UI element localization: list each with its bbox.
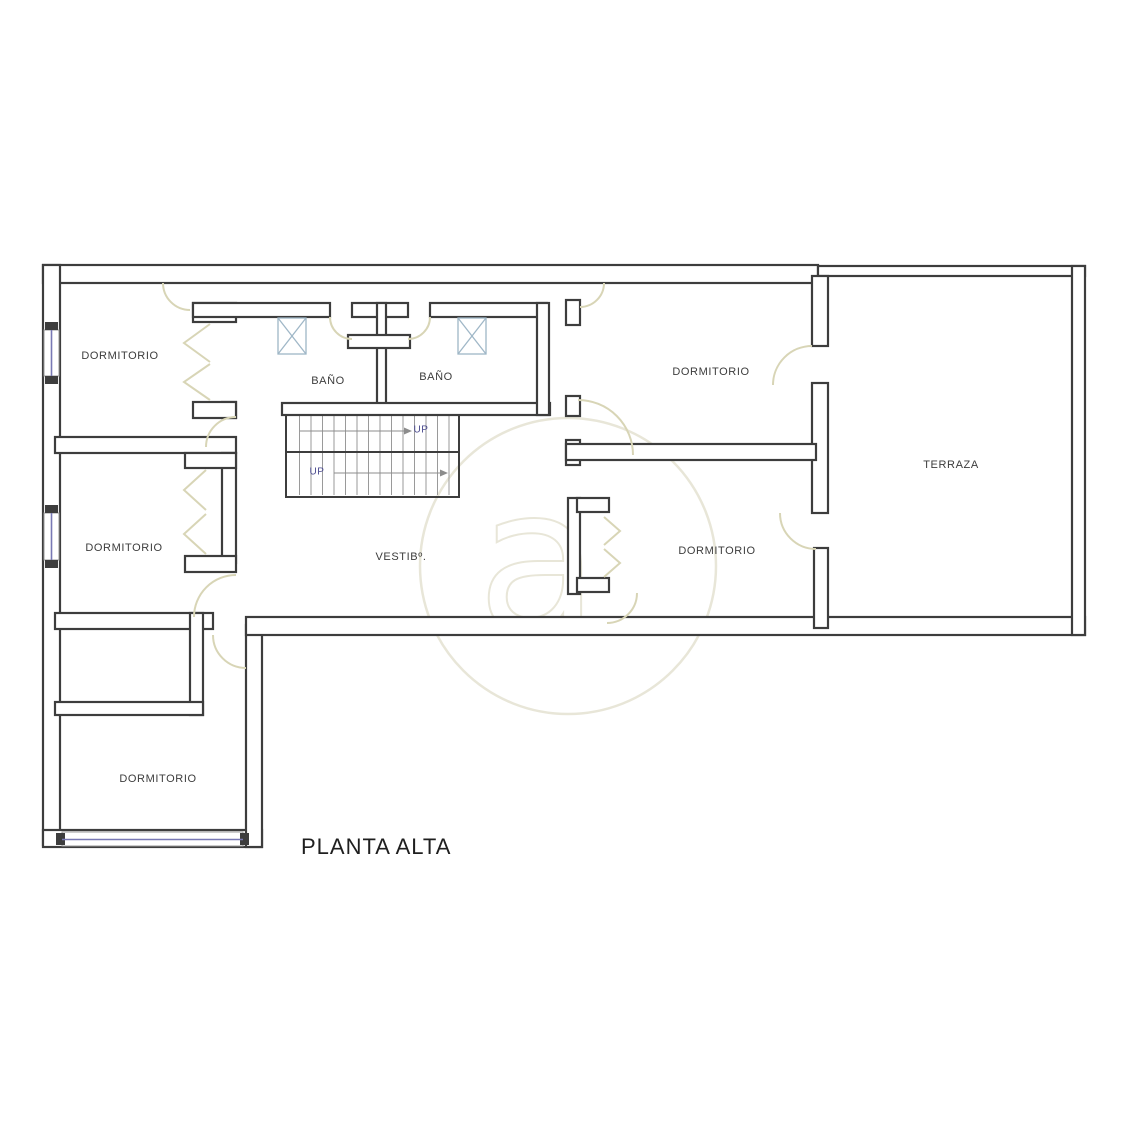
wall-wardrobe-cap-2 [193,402,236,418]
door-arc-bano-right [408,317,430,339]
wall-storage-bottom [55,702,203,715]
wall-divider-left-dorms [55,437,236,453]
wall-storage-right [190,613,203,715]
wardrobe-leaf-6 [604,549,620,577]
window-dorm-mid-left [44,505,59,568]
room-label-dormitorio-top-left: DORMITORIO [81,350,158,362]
wall-bano2-right [537,303,549,415]
room-label-bano-left: BAÑO [311,375,345,387]
room-label-dormitorio-bottom: DORMITORIO [119,773,196,785]
floor-plan-page: a [0,0,1129,1129]
window-dorm-bottom [56,832,249,846]
wall-vestibulo-left [222,453,236,563]
wall-divider-right-dorms [566,444,816,460]
wardrobe-leaf-4 [184,514,206,554]
wardrobe-leaf-3 [184,470,206,510]
wardrobe-leaf-1 [184,324,210,362]
wall-bottom-main [246,617,1085,635]
door-arc-terraza-upper [773,346,812,385]
wall-terraza-left-c [814,548,828,628]
wall-banos-top-a [193,303,330,317]
door-arc-vestibulo-wing [213,635,246,668]
shower-box-bano-right [458,318,486,354]
door-arc-dorm-top-right-entry [580,283,604,307]
wall-wardrobe-cap-3 [185,453,236,468]
room-label-dormitorio-top-right: DORMITORIO [672,366,749,378]
staircase [286,409,459,497]
wall-right-terraza [1072,266,1085,635]
wall-banos-jamb [348,335,410,348]
door-arc-dorm-mid-left [194,575,236,617]
room-label-dormitorio-mid-right: DORMITORIO [678,545,755,557]
plan-title: PLANTA ALTA [301,834,451,860]
door-arc-dorm-top-left [163,283,190,310]
room-label-bano-right: BAÑO [419,371,453,383]
wardrobe-leaf-2 [184,364,210,400]
stair-up-label-upper: UP [414,425,429,436]
wall-right-wing [246,625,262,847]
wall-banos-top-c [430,303,547,317]
wall-closet-cap-top [577,498,609,512]
wall-wardrobe-cap-4 [185,556,236,572]
shower-box-bano-left [278,318,306,354]
door-arc-terraza-lower [780,513,816,549]
floor-plan-drawing: a [0,0,1129,1129]
stair-up-label-lower: UP [310,467,325,478]
wall-closet-cap-bottom [577,578,609,592]
wall-banos-bottom [282,403,550,415]
wall-nook-top [566,300,580,325]
room-label-terraza: TERRAZA [923,459,979,471]
wall-nook-bottom [566,396,580,416]
window-dorm-top-left [44,322,59,384]
wall-banos-partition [377,303,386,413]
room-label-dormitorio-mid-left: DORMITORIO [85,542,162,554]
wall-terraza-left-a [812,276,828,346]
windows [44,322,249,846]
room-label-vestibulo: VESTIBº. [376,551,427,563]
wall-top-main [43,265,818,283]
wardrobe-leaf-5 [604,517,620,545]
wall-top-terraza [818,266,1085,276]
